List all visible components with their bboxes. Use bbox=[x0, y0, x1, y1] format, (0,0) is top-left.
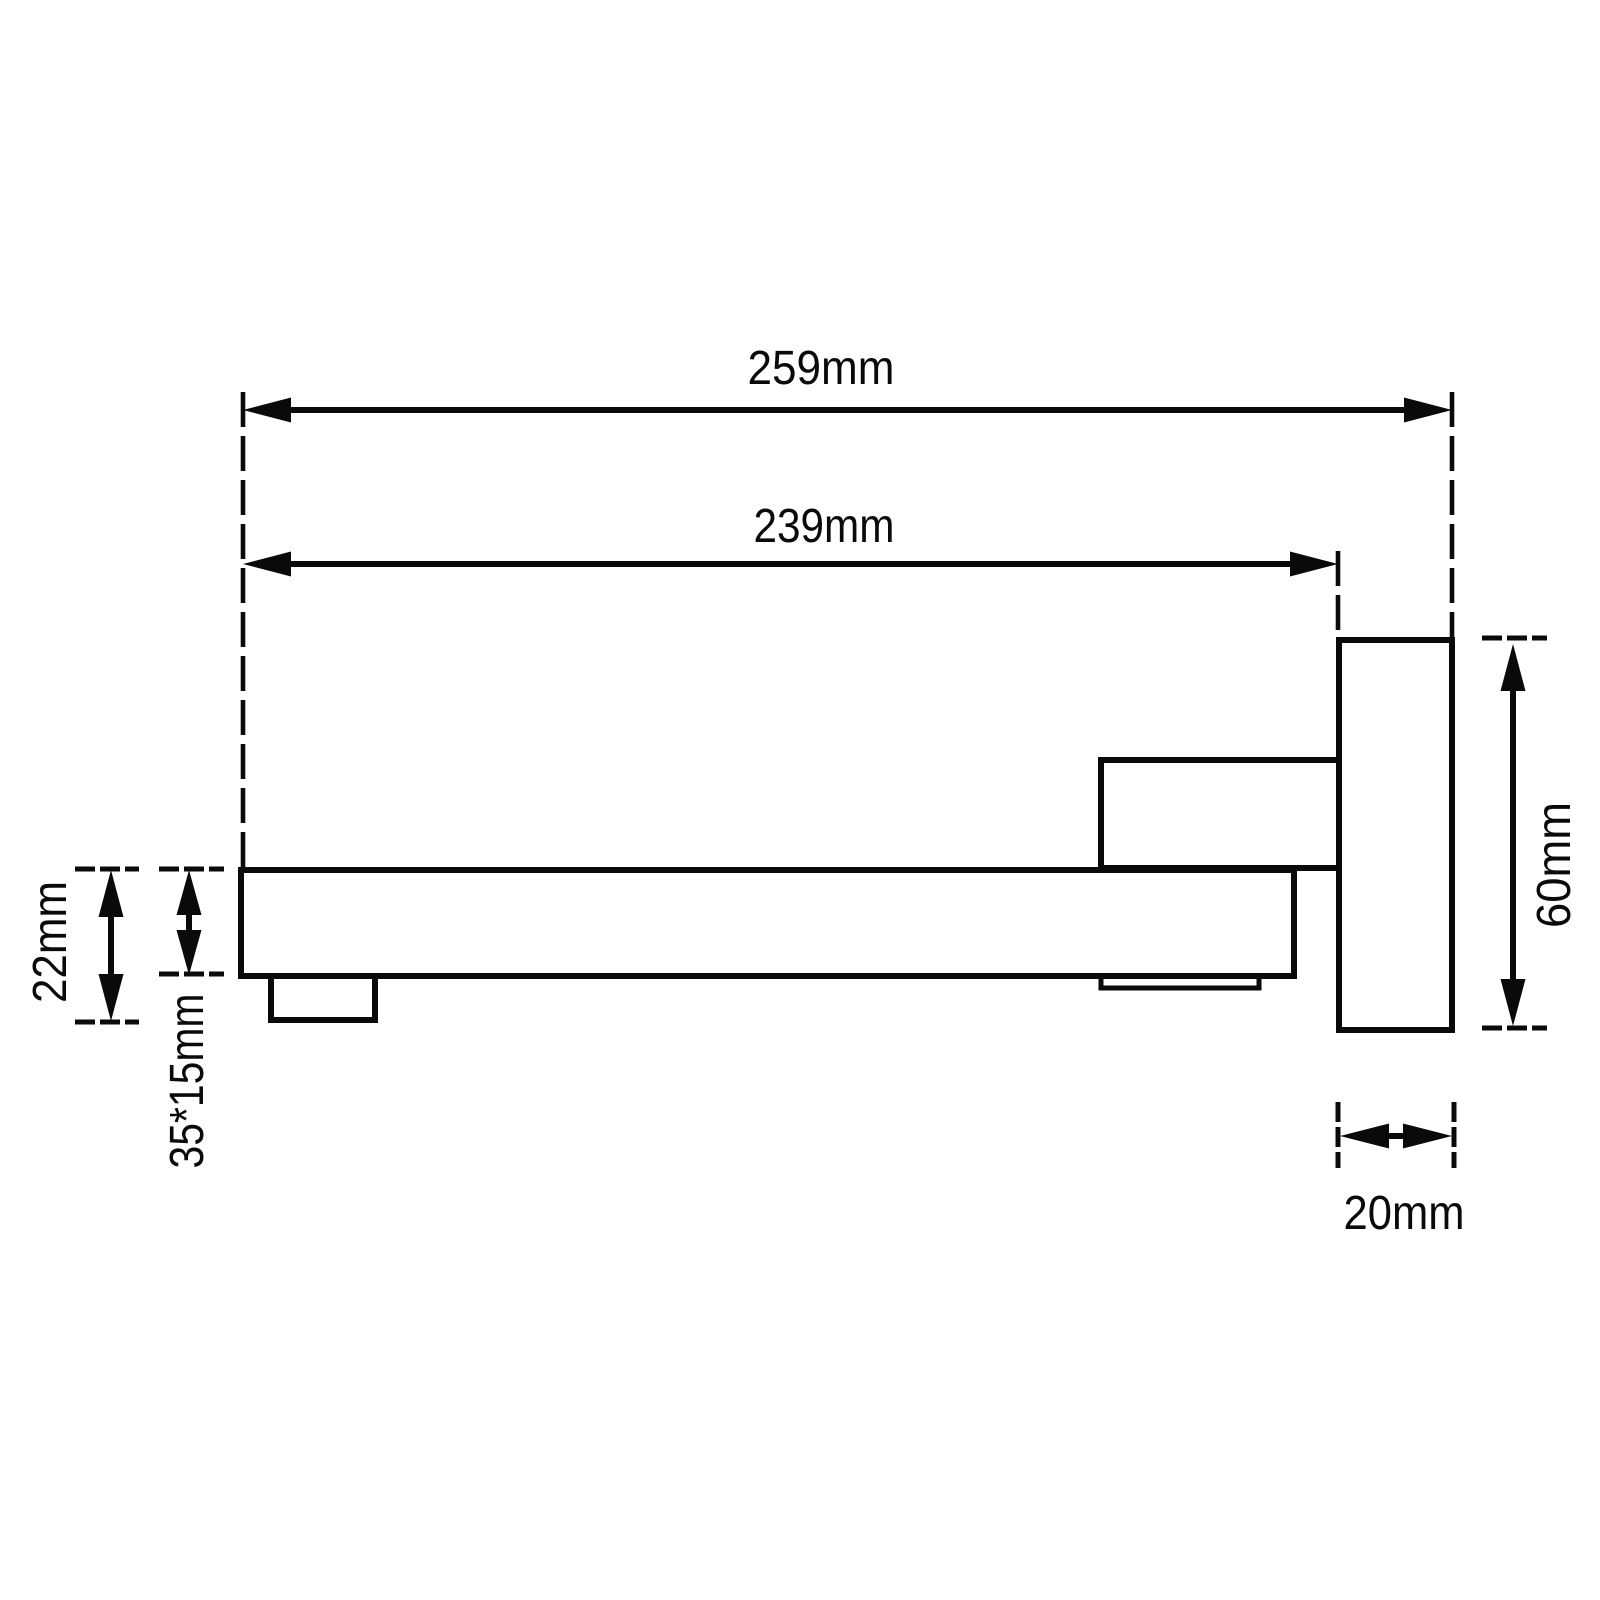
svg-text:35*15mm: 35*15mm bbox=[161, 994, 214, 1169]
svg-text:259mm: 259mm bbox=[748, 342, 895, 395]
svg-text:20mm: 20mm bbox=[1344, 1187, 1465, 1240]
svg-text:60mm: 60mm bbox=[1528, 802, 1581, 928]
svg-text:239mm: 239mm bbox=[754, 500, 895, 553]
svg-text:22mm: 22mm bbox=[24, 881, 77, 1003]
